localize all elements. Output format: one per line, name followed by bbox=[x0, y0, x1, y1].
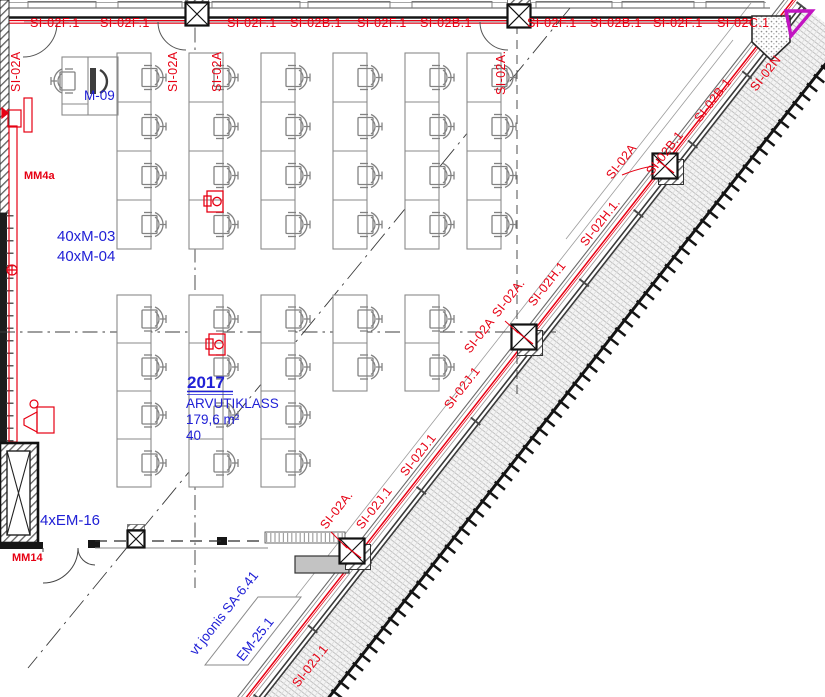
teacher-station bbox=[51, 57, 118, 115]
cable-label-diagonal: SI-02A bbox=[603, 141, 639, 182]
door-leaf-arc-small bbox=[78, 548, 95, 565]
room-name: ARVUTIKLASS bbox=[186, 396, 279, 411]
bottom-wall bbox=[0, 532, 349, 583]
cable-label-vertical: SI-02A bbox=[166, 51, 180, 92]
cable-label-vertical: SI-02A bbox=[210, 51, 224, 92]
cable-label: SI-02F.1 bbox=[100, 16, 150, 30]
cable-label: SI-02B.1 bbox=[420, 16, 472, 30]
exhaust-label: 4xEM-16 bbox=[40, 512, 100, 529]
cable-label-diagonal: SI-02J.1 bbox=[353, 484, 395, 532]
cable-label-vertical: SI-02A. bbox=[494, 51, 508, 96]
cable-label: SI-02F.1 bbox=[527, 16, 577, 30]
cable-label-diagonal: SI-02J.1 bbox=[441, 364, 483, 412]
desk-column bbox=[333, 53, 382, 249]
student-desks bbox=[117, 53, 516, 487]
cable-label: SI-02F.1 bbox=[653, 16, 703, 30]
mm4a-label: MM4a bbox=[24, 170, 55, 182]
speaker-icon bbox=[24, 412, 37, 432]
cable-label-diagonal: SI-02A. bbox=[317, 488, 355, 532]
cable-label: SI-02F.1 bbox=[30, 16, 80, 30]
desk-column bbox=[333, 295, 382, 391]
door-leaf-arc-large bbox=[43, 548, 78, 583]
cable-label: SI-02C.1 bbox=[717, 16, 770, 30]
room-capacity: 40 bbox=[186, 428, 201, 443]
desk-column bbox=[117, 53, 166, 249]
mm14-label: MM14 bbox=[12, 552, 43, 564]
desk-column bbox=[467, 53, 516, 249]
cable-label-vertical: SI-02A bbox=[9, 51, 23, 92]
desk-code-2: 40xM-04 bbox=[57, 248, 115, 265]
floor-plan-canvas: vt joonis SA-6.41 EM-25.1 2017 ARVUTIKLA… bbox=[0, 0, 825, 697]
desk-column bbox=[261, 53, 310, 249]
cable-label-diagonal: SI-02A bbox=[461, 315, 497, 356]
junction-box bbox=[128, 525, 145, 548]
floor-plan-drawing: vt joonis SA-6.41 EM-25.1 2017 ARVUTIKLA… bbox=[0, 0, 825, 697]
wall-joint-bars bbox=[228, 5, 802, 697]
desk-column bbox=[117, 295, 166, 487]
top-wall-cable-labels: SI-02F.1SI-02F.1SI-02F.1SI-02B.1SI-02F.1… bbox=[30, 16, 770, 30]
door-swing-arc-top-mid-1 bbox=[158, 22, 186, 50]
ventilation-shaft bbox=[0, 443, 38, 548]
cable-label: SI-02F.1 bbox=[357, 16, 407, 30]
desk-column bbox=[405, 53, 454, 249]
desk-code-1: 40xM-03 bbox=[57, 228, 115, 245]
cable-label-diagonal: SI-02A. bbox=[489, 276, 527, 320]
junction-box bbox=[186, 0, 209, 26]
teacher-station-label: M-09 bbox=[84, 88, 115, 103]
wall-face-line-1 bbox=[228, 5, 802, 697]
door-swing-arc-top-mid-2 bbox=[480, 22, 508, 50]
teacher-chair bbox=[51, 69, 75, 93]
room-number: 2017 bbox=[187, 373, 225, 392]
desk-column bbox=[405, 295, 454, 391]
cable-label: SI-02B.1 bbox=[290, 16, 342, 30]
room-area: 179,6 m² bbox=[186, 412, 240, 427]
cable-label: SI-02F.1 bbox=[227, 16, 277, 30]
cable-label: SI-02B.1 bbox=[590, 16, 642, 30]
desk-column bbox=[261, 295, 310, 487]
